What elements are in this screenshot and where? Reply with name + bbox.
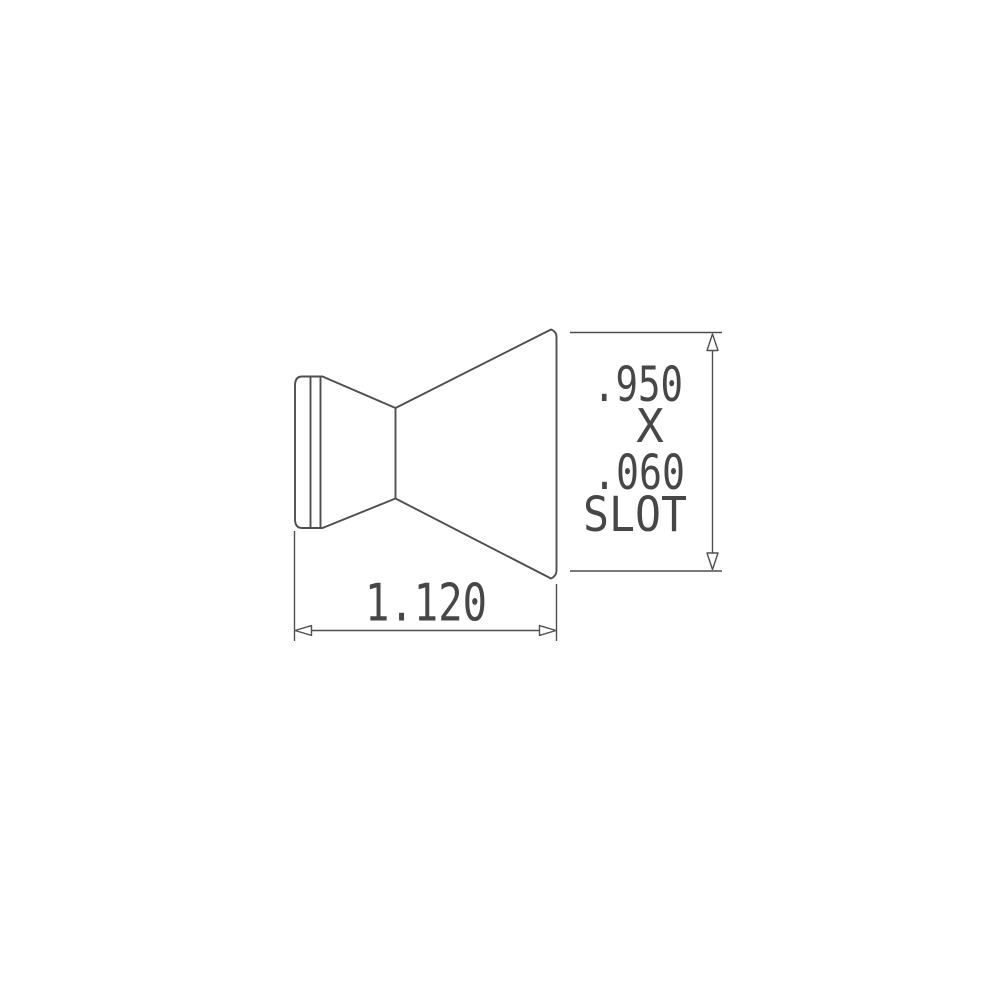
height-dimension-value-line4: SLOT: [583, 487, 687, 543]
arrow-down-icon: [707, 553, 718, 570]
arrow-up-icon: [707, 334, 718, 351]
arrow-left-icon: [295, 626, 312, 636]
drawing-page: .950 X .060 SLOT 1.120: [0, 0, 1000, 1000]
arrow-right-icon: [540, 626, 557, 636]
part-outline: [295, 330, 557, 579]
technical-drawing: .950 X .060 SLOT 1.120: [0, 0, 1000, 1000]
width-dimension-value: 1.120: [365, 574, 487, 634]
